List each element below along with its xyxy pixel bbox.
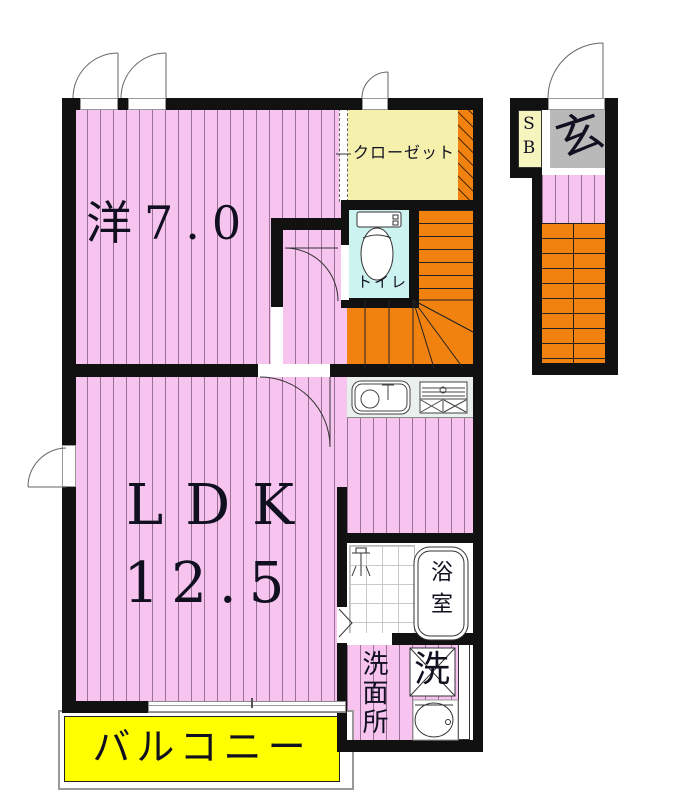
door-swing-arc bbox=[121, 53, 166, 98]
laundry-label: 洗 bbox=[414, 652, 450, 688]
kitchen-sink bbox=[352, 381, 410, 414]
folding-door bbox=[339, 609, 352, 637]
door-swing-arc bbox=[260, 377, 330, 447]
door-swing-arc bbox=[285, 248, 338, 301]
balcony-label: バルコニー bbox=[64, 728, 340, 766]
door-swing-arc bbox=[73, 53, 118, 98]
toilet-fixture bbox=[357, 212, 401, 280]
ldk-label: LDK bbox=[74, 478, 346, 534]
wash-basin bbox=[413, 700, 458, 740]
washroom-label: 洗面所 bbox=[360, 650, 386, 742]
western-room-label: 洋7.0 bbox=[86, 200, 253, 246]
door-swing-arc bbox=[548, 43, 603, 98]
shower-fixture bbox=[352, 548, 370, 576]
toilet-label: トイレ bbox=[357, 275, 408, 290]
stove bbox=[420, 382, 467, 413]
floor-plan: 洋7.0 クローゼット トイレ LDK 12.5 浴室 洗面所 洗 バルコニー … bbox=[0, 0, 698, 800]
ldk-size-label: 12.5 bbox=[74, 556, 346, 612]
shoe-box-label: SB bbox=[520, 114, 537, 166]
bathroom-label: 浴室 bbox=[428, 560, 450, 640]
door-swing-arc bbox=[362, 72, 388, 98]
winder-stair-lines bbox=[365, 300, 473, 368]
door-swing-arc bbox=[28, 448, 66, 487]
closet-label: クローゼット bbox=[353, 145, 455, 161]
